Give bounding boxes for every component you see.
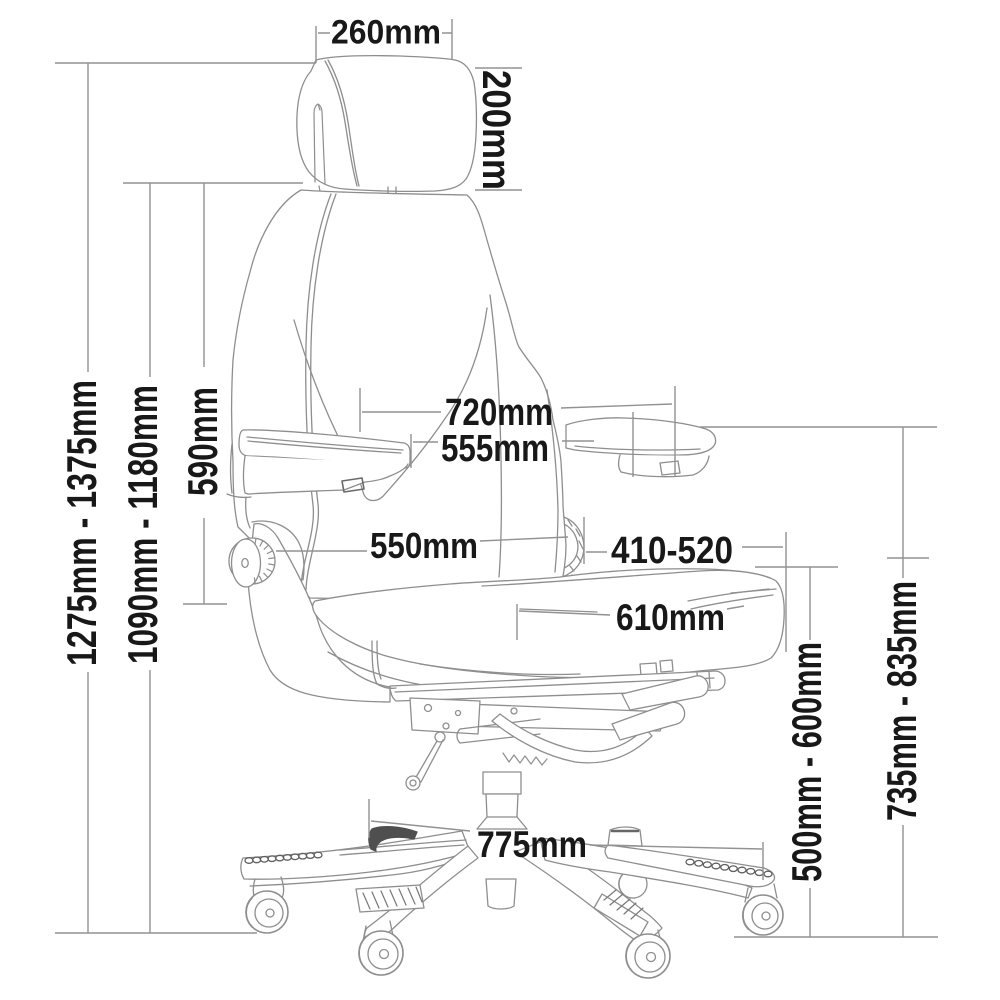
svg-text:200mm: 200mm	[474, 70, 518, 190]
svg-text:550mm: 550mm	[370, 525, 478, 566]
svg-text:1090mm - 1180mm: 1090mm - 1180mm	[119, 385, 166, 664]
svg-text:500mm - 600mm: 500mm - 600mm	[783, 642, 830, 882]
svg-text:260mm: 260mm	[331, 14, 441, 52]
svg-text:555mm: 555mm	[441, 428, 549, 470]
svg-text:1275mm - 1375mm: 1275mm - 1375mm	[58, 380, 105, 666]
svg-text:735mm - 835mm: 735mm - 835mm	[878, 581, 925, 821]
svg-text:410-520: 410-520	[611, 530, 733, 572]
svg-text:590mm: 590mm	[179, 387, 226, 496]
svg-text:775mm: 775mm	[477, 824, 587, 865]
svg-text:610mm: 610mm	[616, 597, 725, 638]
